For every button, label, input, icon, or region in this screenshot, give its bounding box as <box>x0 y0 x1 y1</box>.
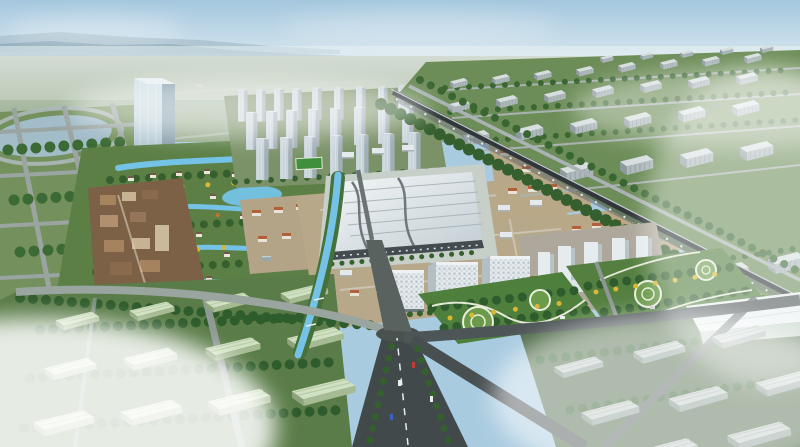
sports-field <box>296 157 323 169</box>
circular-plaza <box>530 290 550 310</box>
rendering-canvas <box>0 0 800 447</box>
fog-wisp-topleft <box>5 16 185 44</box>
masterplan-rendering <box>0 0 800 447</box>
low-slab <box>402 145 414 152</box>
low-slab <box>342 152 354 159</box>
hotel-tower <box>155 225 169 251</box>
low-slab <box>372 148 384 155</box>
exhibition-center <box>318 164 498 270</box>
cloud-top-center <box>280 12 560 44</box>
fog-wisp-center <box>70 78 430 138</box>
